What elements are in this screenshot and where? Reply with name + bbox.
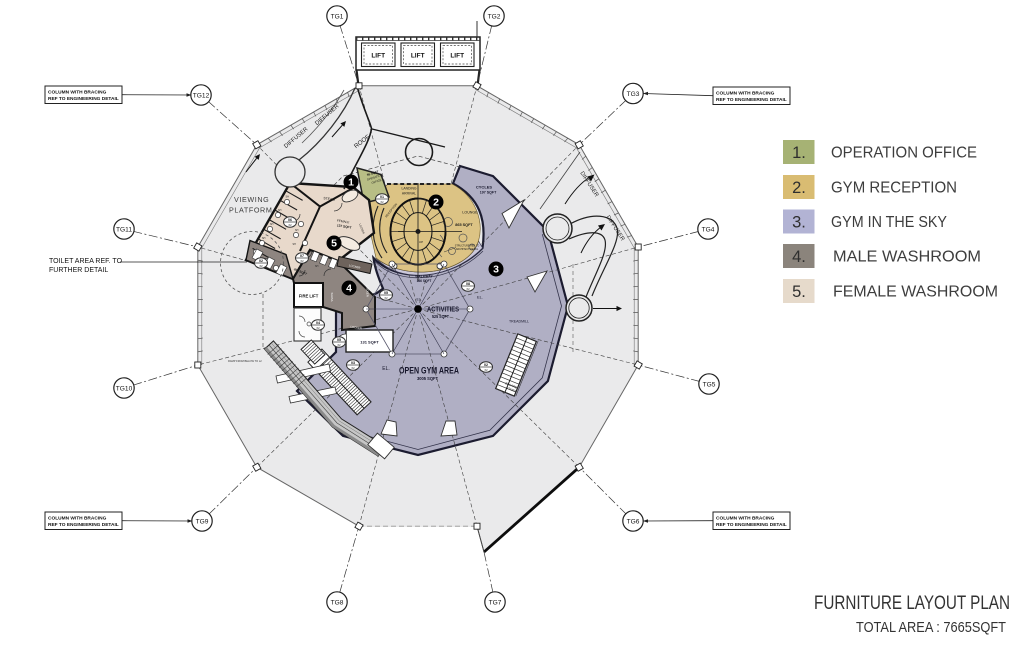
svg-text:05: 05 [384, 291, 388, 295]
svg-text:3.: 3. [792, 214, 806, 232]
svg-text:5: 5 [331, 238, 337, 250]
svg-text:X2: X2 [466, 287, 470, 291]
svg-text:SH: SH [293, 243, 297, 246]
svg-text:COLUMN WITH BRACING: COLUMN WITH BRACING [48, 516, 107, 522]
svg-text:REF TO ENGINEERING DETAIL: REF TO ENGINEERING DETAIL [716, 97, 787, 103]
svg-text:COLUMN WITH BRACING: COLUMN WITH BRACING [716, 91, 775, 97]
svg-text:TG12: TG12 [193, 92, 210, 99]
svg-text:525 SQFT: 525 SQFT [432, 314, 449, 319]
svg-text:FIRE LIFT: FIRE LIFT [299, 294, 319, 299]
svg-text:TG2: TG2 [488, 13, 501, 20]
svg-text:UP: UP [419, 240, 423, 244]
svg-text:3: 3 [493, 264, 499, 276]
svg-text:865 SQFT: 865 SQFT [455, 223, 473, 227]
svg-text:SH: SH [315, 265, 319, 268]
svg-text:04: 04 [316, 321, 320, 325]
svg-text:EL.: EL. [382, 366, 390, 372]
svg-text:X2: X2 [288, 223, 292, 227]
svg-text:COLUMN WITH BRACING: COLUMN WITH BRACING [716, 516, 775, 522]
svg-text:TG3: TG3 [627, 91, 640, 98]
svg-text:X2: X2 [300, 259, 304, 263]
svg-text:197 SQFT: 197 SQFT [480, 191, 497, 195]
svg-text:2.: 2. [792, 179, 806, 197]
svg-text:TG7: TG7 [489, 599, 502, 606]
svg-text:OPERATION OFFICE: OPERATION OFFICE [831, 145, 977, 162]
svg-text:07: 07 [300, 254, 304, 258]
svg-text:LIFT: LIFT [411, 53, 425, 60]
svg-text:REF TO ENGINEERING DETAIL: REF TO ENGINEERING DETAIL [48, 522, 119, 528]
svg-text:VIEWING: VIEWING [234, 195, 269, 204]
svg-text:SH: SH [278, 209, 282, 212]
svg-text:2: 2 [433, 197, 439, 209]
svg-text:02: 02 [259, 259, 263, 263]
svg-text:ACTIVITIES: ACTIVITIES [427, 305, 459, 314]
svg-text:EL.: EL. [416, 298, 421, 302]
svg-text:3005 SQFT: 3005 SQFT [417, 376, 438, 382]
svg-text:TG9: TG9 [196, 518, 209, 525]
svg-text:CYCLES: CYCLES [476, 185, 493, 190]
svg-text:LANDING: LANDING [401, 187, 416, 191]
svg-text:1: 1 [348, 177, 354, 189]
svg-text:01: 01 [380, 195, 384, 199]
svg-text:FURNITURE LAYOUT PLAN: FURNITURE LAYOUT PLAN [814, 593, 1010, 614]
svg-text:08: 08 [466, 282, 470, 286]
svg-text:FEMALE WASHROOM: FEMALE WASHROOM [833, 284, 998, 301]
svg-text:TOILET AREA REF. TO: TOILET AREA REF. TO [49, 258, 123, 265]
svg-text:TG8: TG8 [331, 599, 344, 606]
svg-text:EL.: EL. [477, 295, 483, 300]
svg-text:TG11: TG11 [116, 226, 132, 233]
svg-text:TG1: TG1 [331, 13, 344, 20]
svg-text:X2: X2 [337, 343, 341, 347]
svg-text:TREADMILL: TREADMILL [509, 320, 529, 324]
svg-text:4.: 4. [792, 248, 806, 266]
svg-text:LIFT: LIFT [371, 53, 385, 60]
svg-text:X2: X2 [259, 264, 263, 268]
svg-text:TG5: TG5 [703, 381, 716, 388]
svg-text:ARRIVAL: ARRIVAL [402, 192, 416, 196]
svg-text:X2: X2 [351, 366, 355, 370]
svg-text:SH: SH [286, 196, 290, 199]
svg-text:FURTHER DETAIL: FURTHER DETAIL [49, 267, 108, 274]
svg-text:X2: X2 [380, 200, 384, 204]
svg-text:SH: SH [295, 229, 299, 232]
svg-text:COLUMN WITH BRACING: COLUMN WITH BRACING [48, 90, 107, 96]
svg-text:TOTAL AREA : 7665SQFT: TOTAL AREA : 7665SQFT [856, 619, 1006, 636]
svg-text:SH: SH [270, 223, 274, 226]
svg-text:5.: 5. [792, 283, 806, 301]
svg-text:RAMP FROM BELOW TO L2: RAMP FROM BELOW TO L2 [228, 359, 262, 363]
svg-text:LIFT: LIFT [450, 53, 464, 60]
svg-text:OPEN GYM AREA: OPEN GYM AREA [399, 366, 459, 376]
svg-text:GYM RECEPTION: GYM RECEPTION [831, 180, 957, 197]
svg-text:1.: 1. [792, 144, 806, 162]
svg-text:GYM IN THE SKY: GYM IN THE SKY [831, 214, 947, 231]
svg-text:LOUNGE: LOUNGE [462, 211, 478, 215]
svg-text:06: 06 [288, 218, 292, 222]
svg-text:MALE WASHROOM: MALE WASHROOM [833, 249, 981, 266]
svg-text:SAUNA: SAUNA [330, 293, 334, 302]
svg-text:4: 4 [346, 283, 352, 295]
svg-text:REF TO ENGINEERING DETAIL: REF TO ENGINEERING DETAIL [48, 96, 119, 102]
svg-text:LOCKER: LOCKER [366, 285, 370, 297]
svg-text:PLATFORM: PLATFORM [229, 206, 272, 215]
svg-text:131 SQFT: 131 SQFT [360, 340, 379, 345]
svg-text:TG10: TG10 [116, 385, 133, 392]
svg-text:TG6: TG6 [627, 518, 640, 525]
svg-text:ARCHITECT DETAIL: ARCHITECT DETAIL [456, 248, 479, 251]
svg-text:TG4: TG4 [702, 226, 715, 233]
svg-text:X2: X2 [384, 296, 388, 300]
svg-text:REF TO ENGINEERING DETAIL: REF TO ENGINEERING DETAIL [716, 522, 787, 528]
svg-text:X2: X2 [316, 326, 320, 330]
svg-text:SH: SH [262, 237, 266, 240]
svg-text:WALKWAY: WALKWAY [415, 275, 433, 279]
svg-text:02: 02 [484, 363, 488, 367]
svg-text:05: 05 [337, 338, 341, 342]
svg-text:X2: X2 [484, 368, 488, 372]
svg-text:03: 03 [351, 361, 355, 365]
svg-text:186 SQFT: 186 SQFT [417, 279, 432, 283]
